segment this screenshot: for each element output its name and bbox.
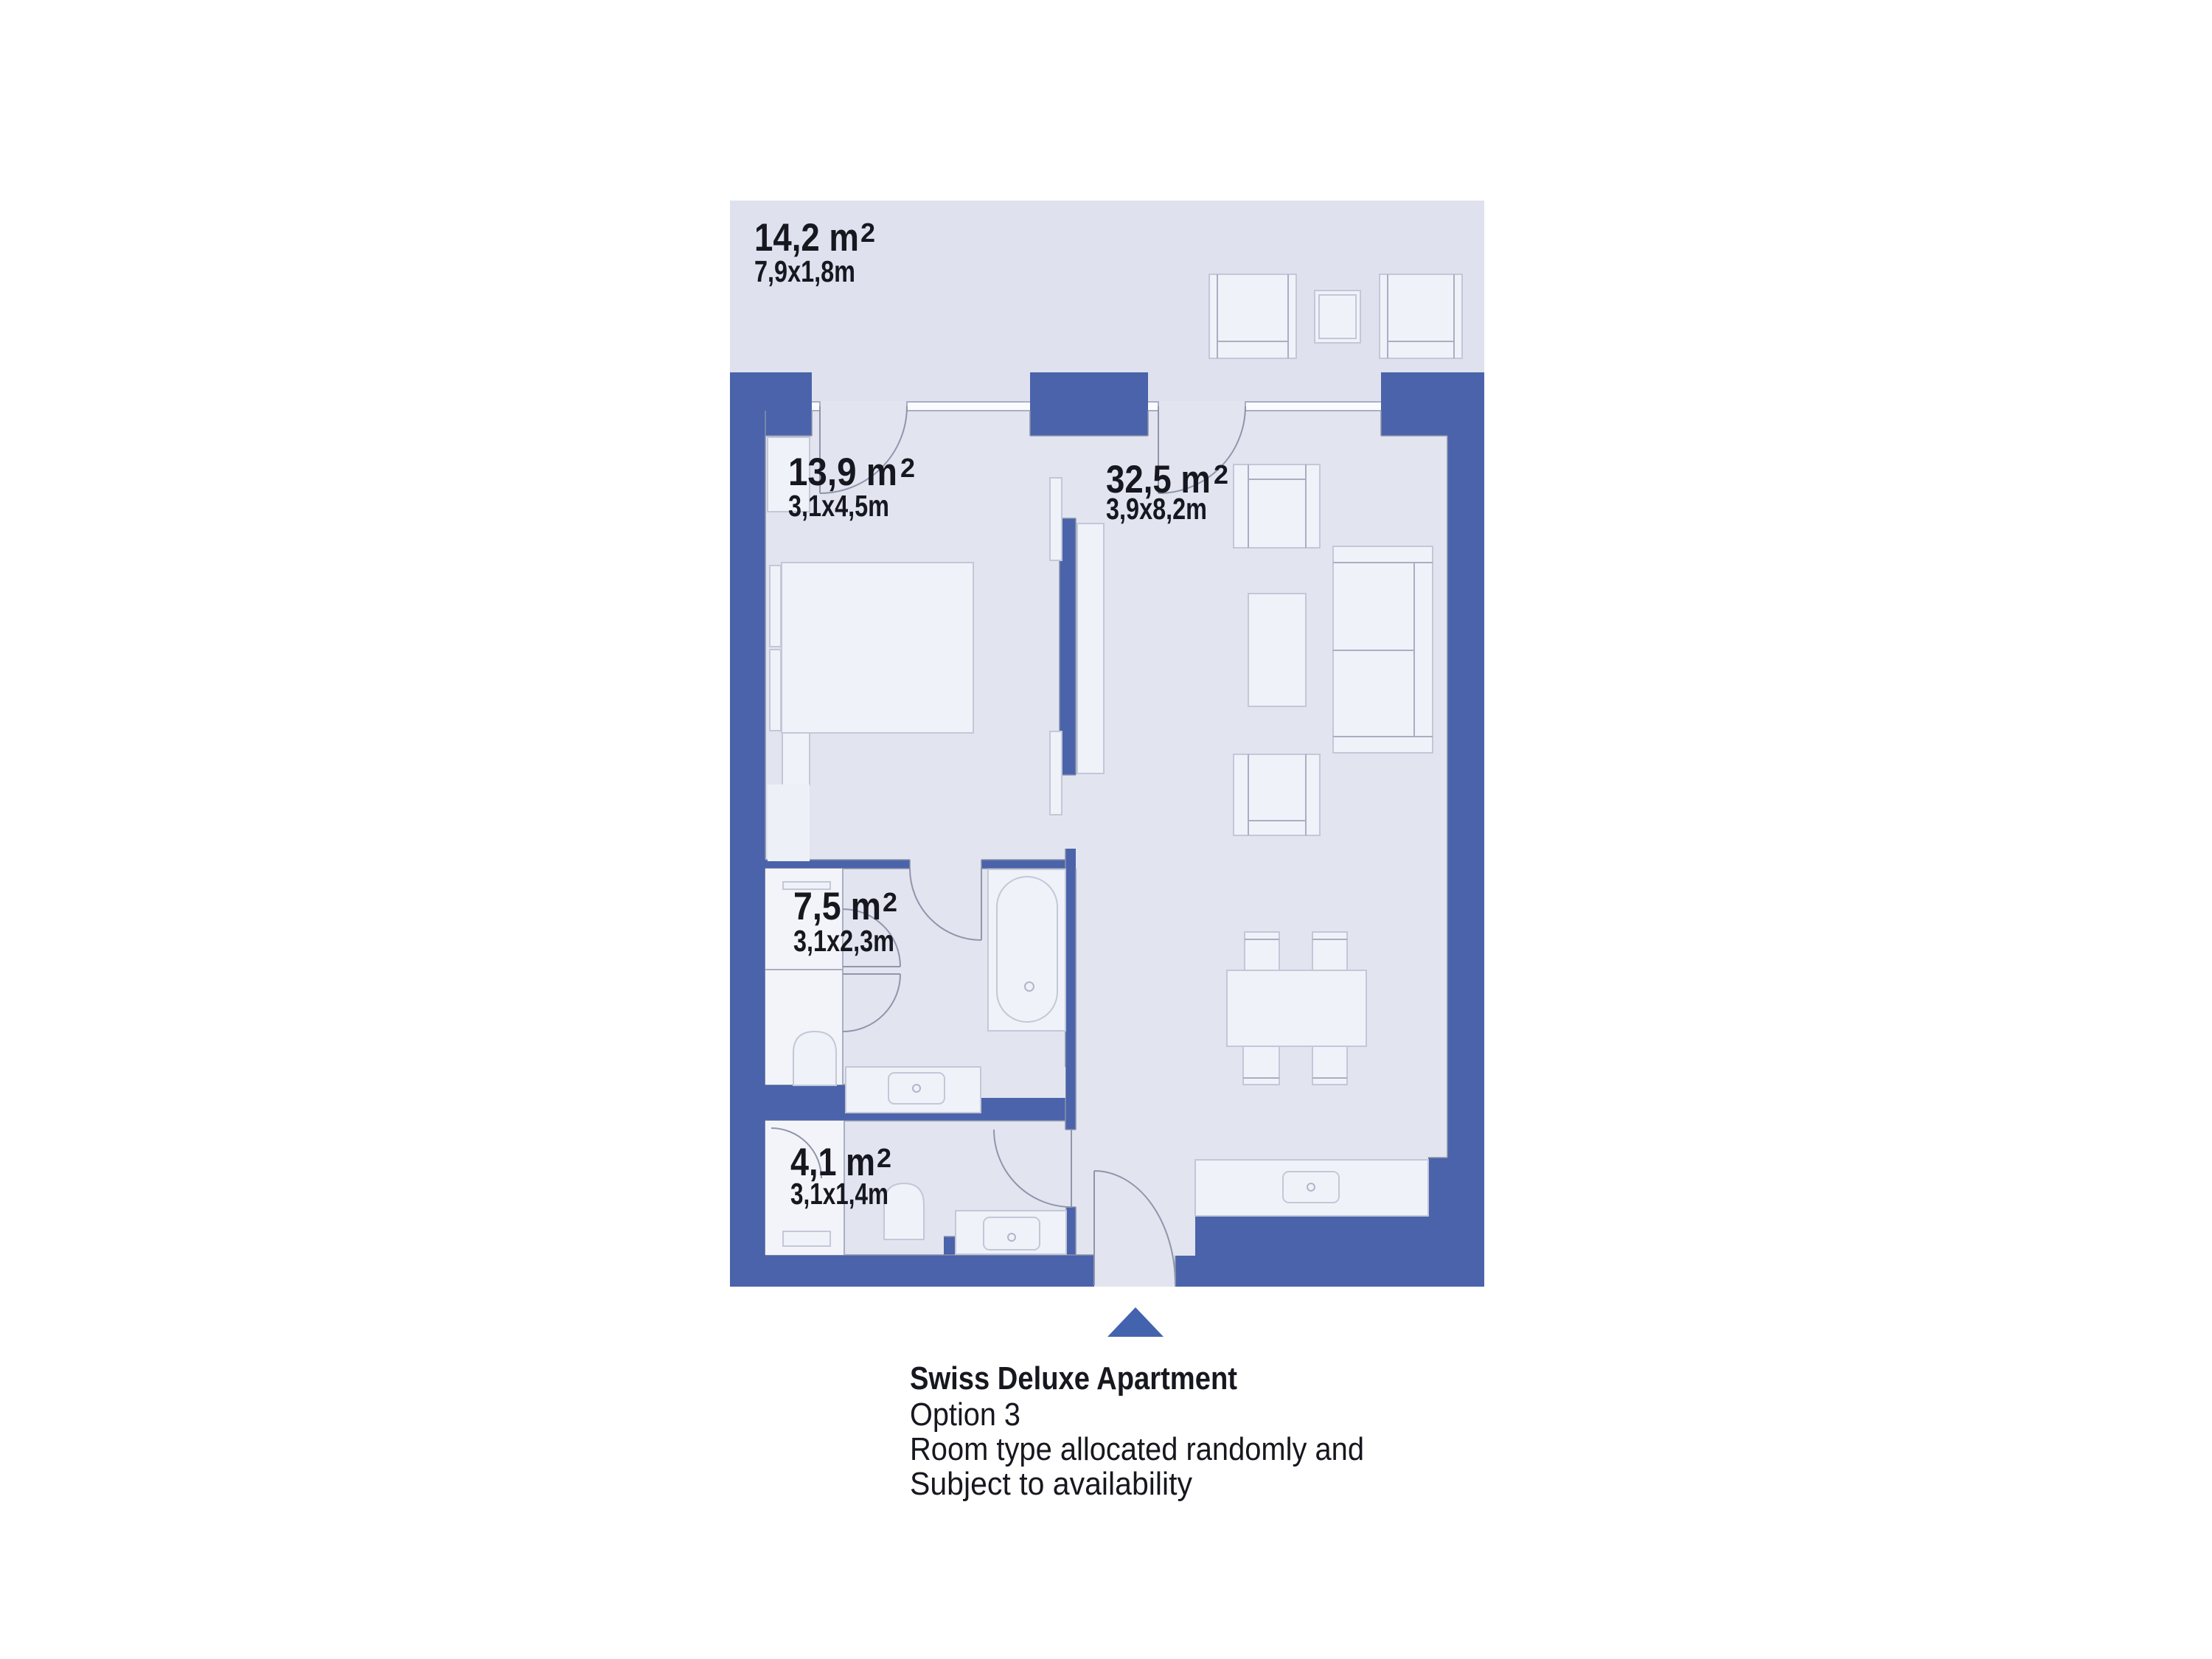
svg-text:3,1x1,4m: 3,1x1,4m: [790, 1177, 888, 1211]
svg-text:2: 2: [877, 1143, 891, 1173]
svg-text:13,9 m: 13,9 m: [788, 451, 897, 494]
svg-text:Subject to availability: Subject to availability: [910, 1466, 1192, 1502]
svg-text:2: 2: [900, 453, 915, 483]
svg-text:Option 3: Option 3: [910, 1397, 1020, 1433]
svg-text:7,5 m: 7,5 m: [793, 885, 881, 928]
svg-text:3,1x4,5m: 3,1x4,5m: [788, 489, 889, 523]
svg-text:2: 2: [860, 218, 875, 248]
svg-text:Swiss Deluxe Apartment: Swiss Deluxe Apartment: [910, 1360, 1237, 1397]
svg-text:Room type allocated randomly a: Room type allocated randomly and: [910, 1431, 1364, 1467]
svg-text:3,1x2,3m: 3,1x2,3m: [793, 924, 894, 958]
svg-text:14,2 m: 14,2 m: [754, 216, 859, 260]
svg-text:3,9x8,2m: 3,9x8,2m: [1106, 492, 1207, 526]
svg-text:7,9x1,8m: 7,9x1,8m: [754, 254, 855, 288]
svg-text:2: 2: [1214, 459, 1228, 490]
svg-text:2: 2: [883, 887, 897, 917]
